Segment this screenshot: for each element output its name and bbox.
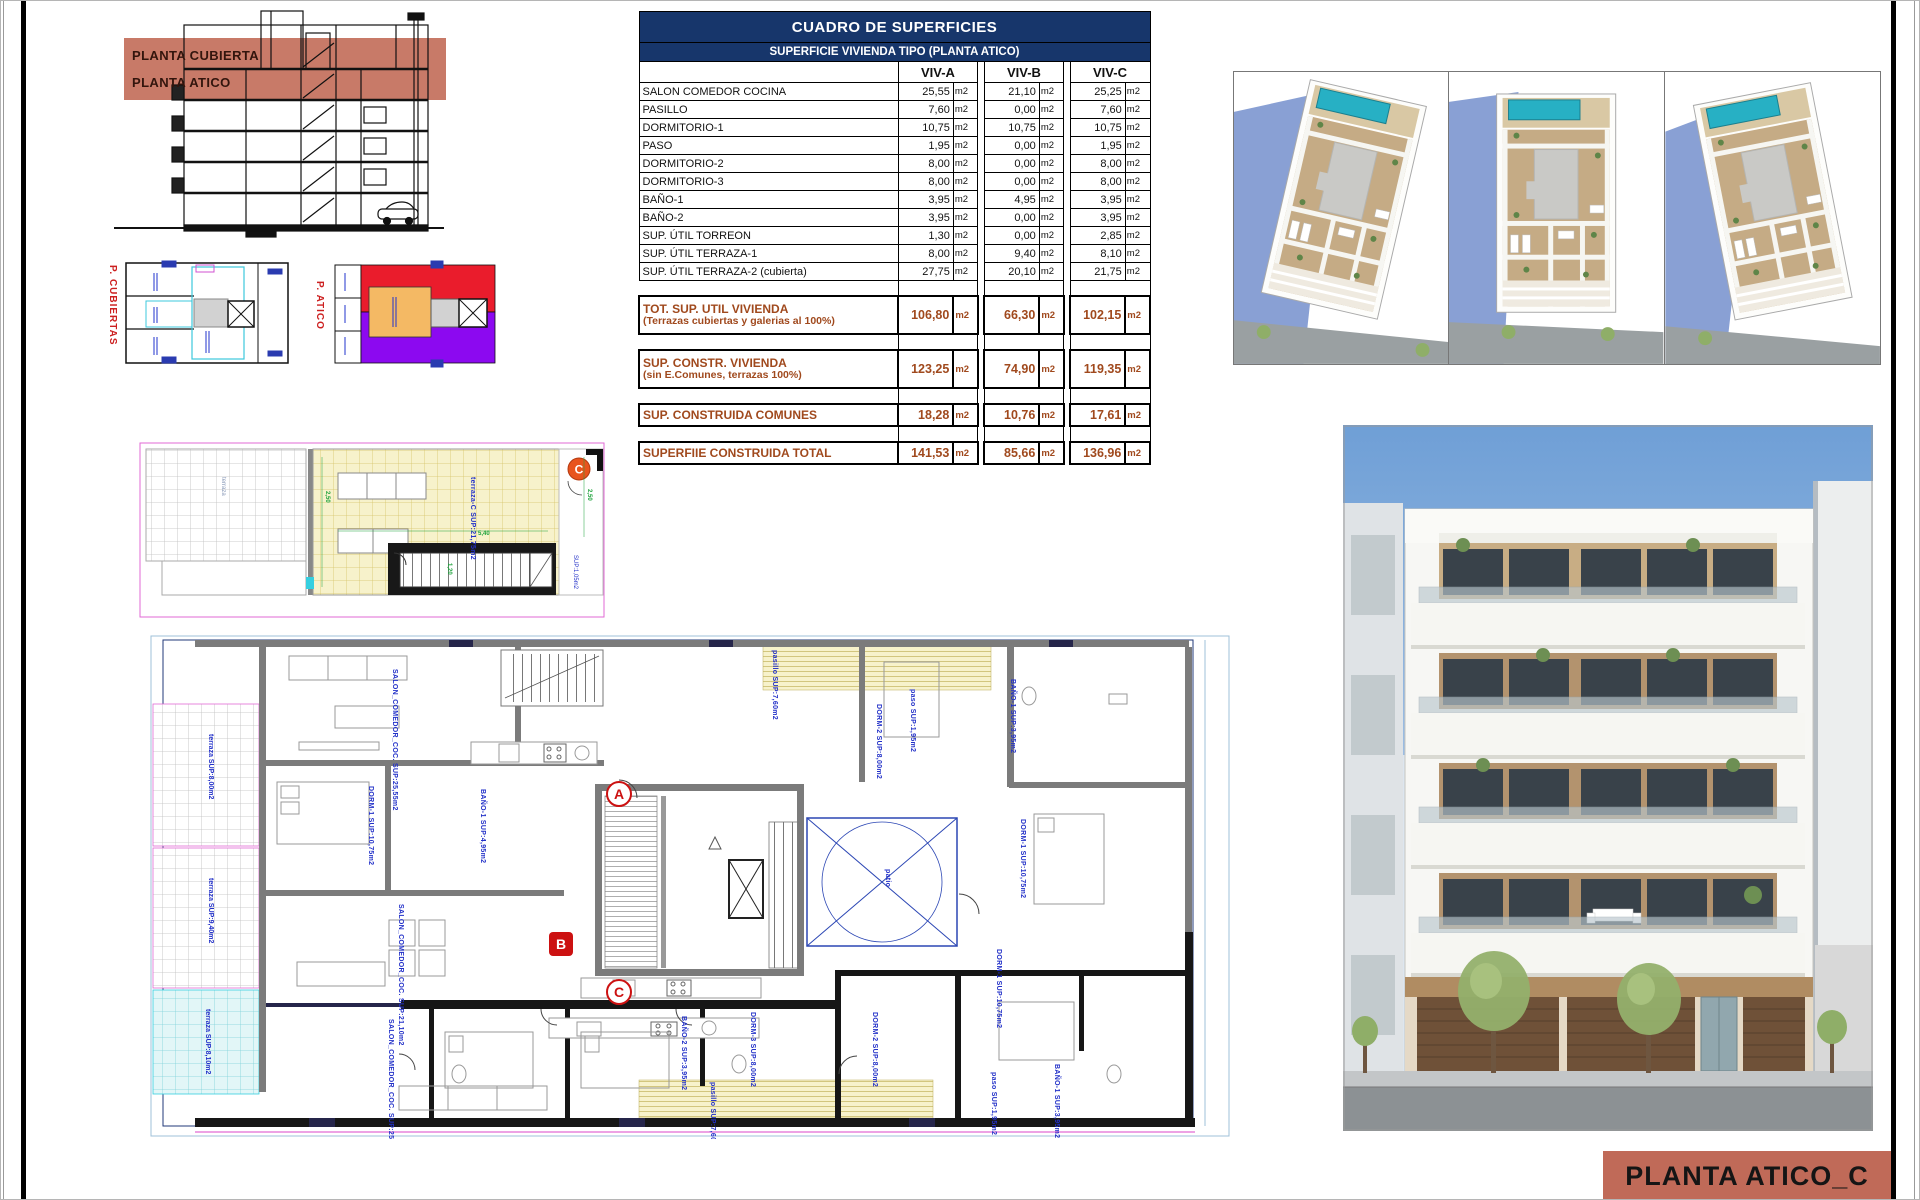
stair-core — [605, 796, 799, 968]
key-plan-atico: P. ATICO — [301, 259, 501, 374]
adjacent-building-right — [1813, 481, 1873, 1071]
svg-text:2,50: 2,50 — [586, 489, 592, 501]
sheet-border-left-thin — [3, 1, 4, 1200]
sheet-border-right — [1891, 1, 1896, 1200]
roof-terrace-label: terraza-C SUP:21,75m2 — [469, 477, 476, 560]
svg-text:pasillo SUP:7,60m2: pasillo SUP:7,60m2 — [709, 1082, 716, 1139]
svg-text:BAÑO-1 SUP:4,95m2: BAÑO-1 SUP:4,95m2 — [479, 789, 488, 863]
aerial-render-1 — [1234, 72, 1449, 364]
svg-text:C: C — [575, 463, 584, 477]
building-section-drawing: PLANTA CUBIERTA PLANTA ATICO — [96, 7, 581, 277]
svg-text:BAÑO-2 SUP:3,95m2: BAÑO-2 SUP:3,95m2 — [680, 1016, 689, 1090]
white-terrace-label: terraza — [220, 477, 226, 496]
svg-text:SALON_COMEDOR_COC. SUP:21,10m2: SALON_COMEDOR_COC. SUP:21,10m2 — [397, 904, 404, 1046]
surface-table: CUADRO DE SUPERFICIESSUPERFICIE VIVIENDA… — [638, 11, 1153, 465]
svg-text:2,50: 2,50 — [324, 491, 330, 503]
svg-text:paso SUP:1,95m2: paso SUP:1,95m2 — [990, 1072, 997, 1135]
svg-text:SALON_COMEDOR_COC. SUP:25,25m2: SALON_COMEDOR_COC. SUP:25,25m2 — [387, 1019, 394, 1139]
area-table: CUADRO DE SUPERFICIESSUPERFICIE VIVIENDA… — [638, 11, 1151, 465]
unit-marker-b: B — [549, 932, 573, 956]
road — [1343, 1087, 1873, 1131]
sidewalk — [1343, 1071, 1873, 1087]
title-block: PLANTA ATICO_C — [1603, 1151, 1891, 1200]
svg-text:DORM-2 SUP:8,00m2: DORM-2 SUP:8,00m2 — [875, 704, 882, 779]
svg-text:paso SUP:1,95m2: paso SUP:1,95m2 — [909, 689, 916, 752]
svg-text:SALON_COMEDOR_COC. SUP:25,55m2: SALON_COMEDOR_COC. SUP:25,55m2 — [391, 669, 398, 811]
svg-text:terraza SUP:8,10m2: terraza SUP:8,10m2 — [204, 1009, 211, 1074]
roof-terrace-plan: C terraza-C SUP:21,75m2 terraza SUP:1,05… — [138, 437, 610, 623]
sheet-title: PLANTA ATICO_C — [1625, 1161, 1869, 1192]
aerial-renders — [1233, 71, 1881, 365]
atico-zone-orange — [369, 287, 431, 337]
section-label-planta-atico: PLANTA ATICO — [132, 75, 231, 90]
svg-text:patio: patio — [884, 869, 891, 887]
patio — [807, 818, 957, 946]
svg-text:BAÑO-1 SUP:3,95m2: BAÑO-1 SUP:3,95m2 — [1053, 1064, 1062, 1138]
svg-text:DORM-1 SUP:10,75m2: DORM-1 SUP:10,75m2 — [367, 786, 374, 865]
svg-text:B: B — [556, 936, 566, 952]
elevator-icon — [228, 301, 254, 327]
aerial-render-2 — [1449, 72, 1664, 364]
key-plan-cubiertas-label: P. CUBIERTAS — [107, 265, 118, 346]
svg-text:DORM-1 SUP:10,75m2: DORM-1 SUP:10,75m2 — [1019, 819, 1026, 898]
sheet-border-left — [21, 1, 26, 1200]
svg-text:pasillo SUP:7,60m2: pasillo SUP:7,60m2 — [771, 650, 778, 720]
sheet-border-right-thin — [1914, 1, 1915, 1200]
svg-text:terraza SUP:8,00m2: terraza SUP:8,00m2 — [207, 734, 214, 799]
upper-stair — [501, 650, 603, 706]
facade-render — [1343, 425, 1873, 1131]
aerial-render-3 — [1665, 72, 1880, 364]
main-floor-plan: A B C SALON_COMEDOR_COC. SUP:25,55m2 DOR… — [149, 634, 1234, 1139]
svg-text:DORM-1 SUP:10,75m2: DORM-1 SUP:10,75m2 — [995, 949, 1002, 1028]
svg-text:terraza SUP:9,40m2: terraza SUP:9,40m2 — [207, 878, 214, 943]
car-icon — [378, 202, 418, 225]
unit-marker-a: A — [607, 782, 631, 806]
area-table-body: CUADRO DE SUPERFICIESSUPERFICIE VIVIENDA… — [639, 12, 1150, 465]
key-plan-cubiertas: P. CUBIERTAS — [96, 259, 301, 374]
svg-text:BAÑO-1 SUP:3,95m2: BAÑO-1 SUP:3,95m2 — [1009, 679, 1018, 753]
elevator-icon — [459, 299, 487, 327]
adjacent-building-left — [1343, 503, 1403, 1071]
svg-text:DORM-3 SUP:8,00m2: DORM-3 SUP:8,00m2 — [749, 1012, 756, 1087]
section-label-planta-cubierta: PLANTA CUBIERTA — [132, 48, 259, 63]
svg-text:A: A — [614, 786, 624, 802]
drawing-sheet: PLANTA CUBIERTA PLANTA ATICO P. CUBIERTA… — [0, 0, 1920, 1200]
unit-marker-c: C — [607, 980, 631, 1004]
svg-text:5,40: 5,40 — [478, 531, 490, 537]
svg-text:DORM-2 SUP:8,00m2: DORM-2 SUP:8,00m2 — [871, 1012, 878, 1087]
roof-small-sup-label: SUP:1,05m2 — [572, 555, 578, 590]
key-plan-atico-label: P. ATICO — [314, 281, 325, 330]
svg-text:1,20: 1,20 — [446, 563, 452, 575]
facade-floors — [1411, 533, 1805, 977]
svg-text:C: C — [614, 984, 624, 1000]
